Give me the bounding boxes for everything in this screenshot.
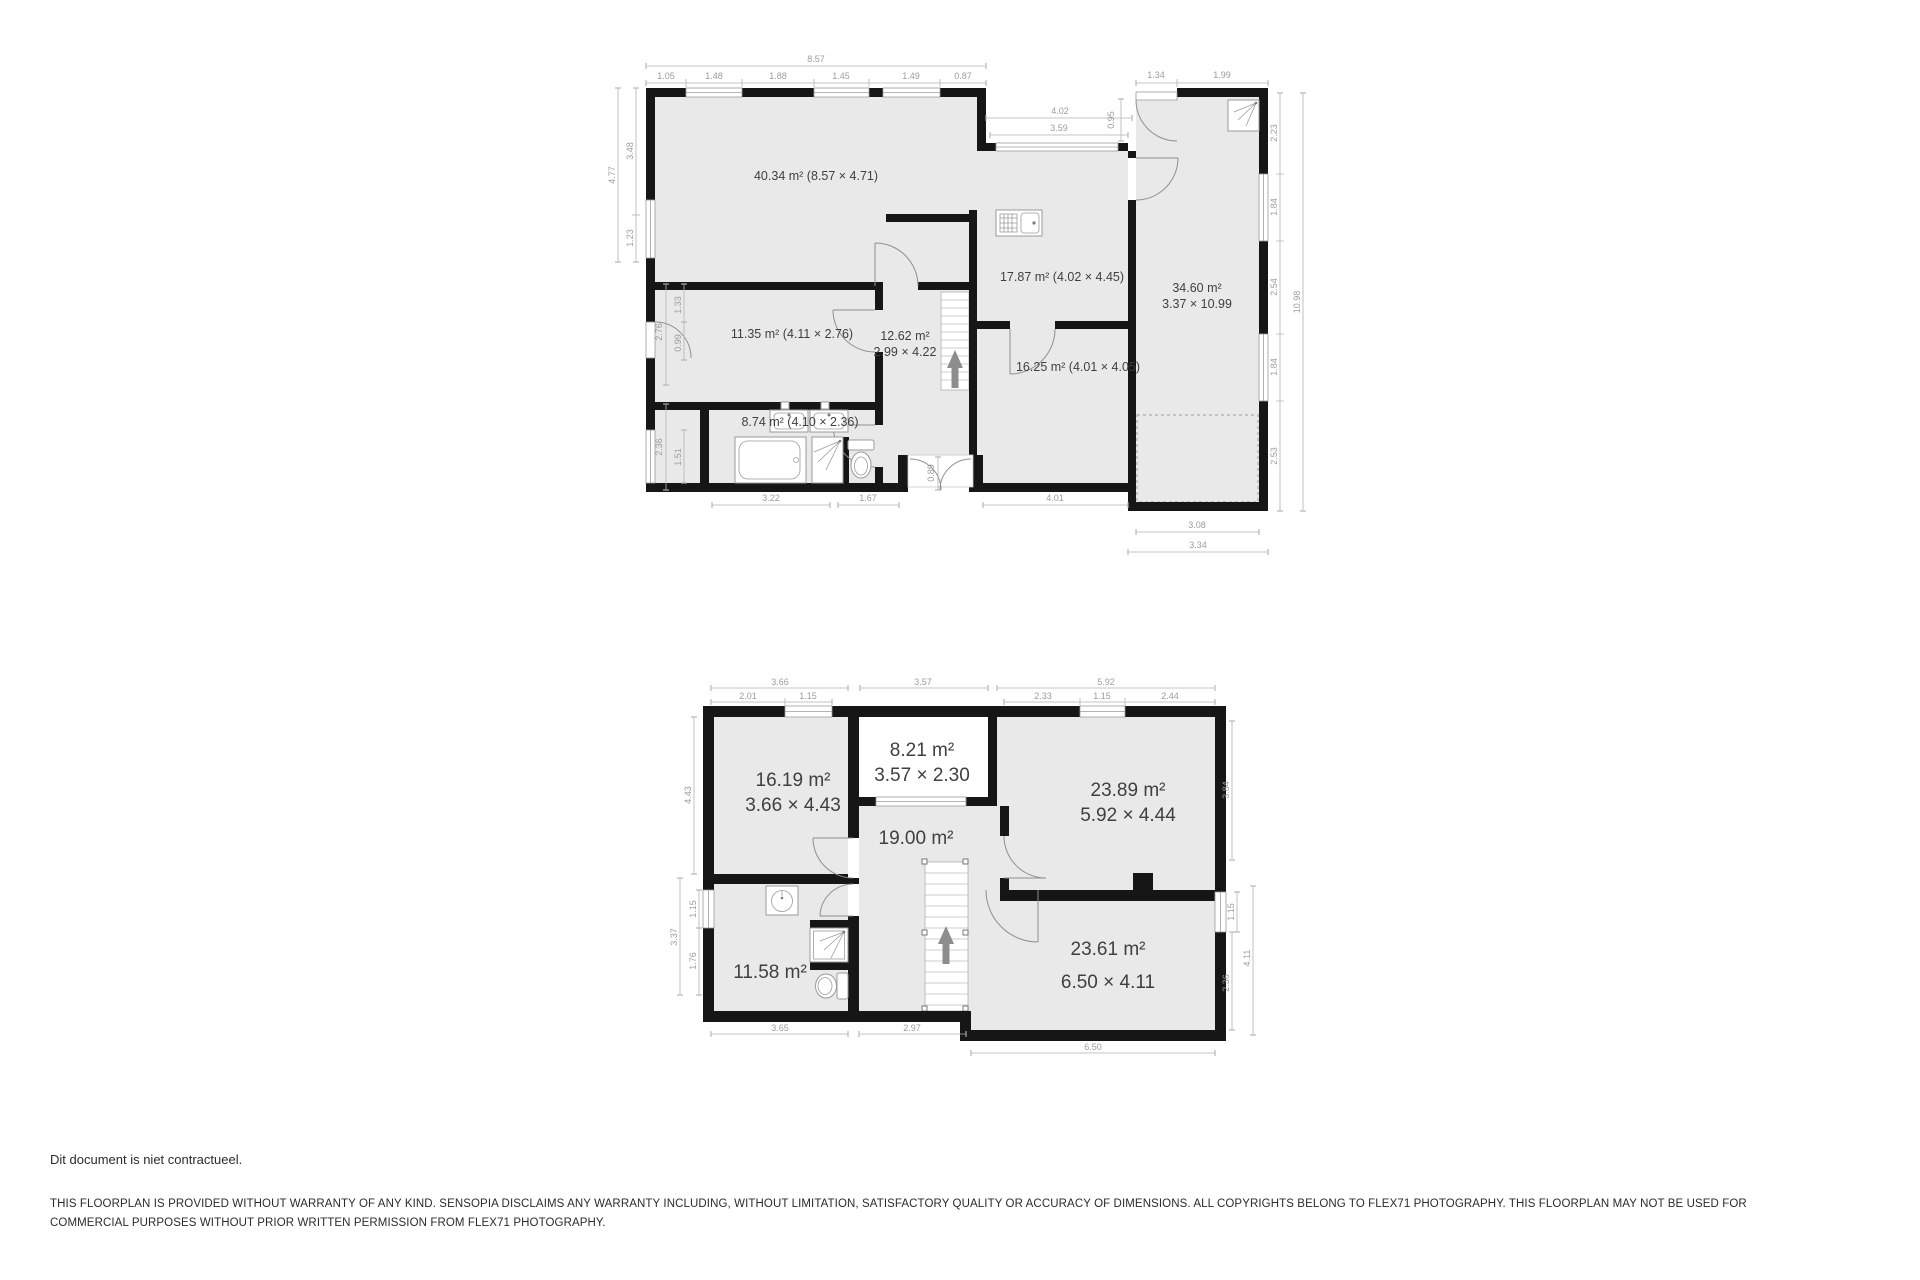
window	[785, 706, 832, 717]
front-door-slab	[1136, 92, 1177, 100]
dim-label: 3.37	[669, 928, 679, 946]
dim-label: 2.53	[1269, 447, 1279, 465]
dim-label: 1.34	[1147, 70, 1165, 80]
room-label-hall-size: 2.99 × 4.22	[874, 345, 937, 359]
shower-icon	[810, 928, 848, 962]
window	[703, 890, 714, 928]
dim-label: 2.76	[654, 323, 664, 341]
dim-label: 4.43	[683, 786, 693, 804]
dim-label: 1.99	[1213, 70, 1231, 80]
dim-label: 2.01	[739, 691, 757, 701]
shower-cubicle-icon	[1228, 100, 1259, 131]
dim-label: 1.15	[799, 691, 817, 701]
dim-label: 4.77	[607, 166, 617, 184]
room-label-garage-area: 34.60 m²	[1172, 281, 1221, 295]
toilet-icon	[816, 973, 849, 999]
garage-door-area	[1137, 415, 1258, 502]
dim-label: 2.36	[654, 438, 664, 456]
dim-label: 4.01	[1046, 493, 1064, 503]
room-label-landing: 19.00 m²	[879, 828, 954, 849]
room-label-bed3-size: 6.50 × 4.11	[1061, 972, 1155, 993]
floorplan-drawing: 8.57 1.05 1.48 1.88 1.45 1.49 0.87 4.02 …	[0, 0, 1920, 1280]
dim-label: 2.54	[1269, 278, 1279, 296]
room-label-bed2-size: 5.92 × 4.44	[1080, 805, 1176, 826]
dim-label: 1.84	[1269, 358, 1279, 376]
dim-label: 0.87	[954, 71, 972, 81]
contract-note: Dit document is niet contractueel.	[50, 1152, 242, 1167]
disclaimer-line-2: COMMERCIAL PURPOSES WITHOUT PRIOR WRITTE…	[50, 1217, 1890, 1229]
room-label-bed1-size: 3.66 × 4.43	[745, 795, 841, 816]
window	[814, 88, 869, 97]
dim-label: 1.15	[1226, 903, 1236, 921]
dim-label: 3.57	[914, 677, 932, 687]
disclaimer-line-1: THIS FLOORPLAN IS PROVIDED WITHOUT WARRA…	[50, 1198, 1890, 1210]
dim-label: 3.34	[1189, 540, 1207, 550]
first-floor-plan: 3.66 2.01 1.15 3.57 5.92 2.33 1.15 2.44 …	[669, 677, 1253, 1053]
dim-label: 1.05	[657, 71, 675, 81]
room-label-garage-size: 3.37 × 10.99	[1162, 297, 1232, 311]
room-label-dining: 16.25 m² (4.01 × 4.05)	[1016, 360, 1140, 374]
room-label-bed2-area: 23.89 m²	[1091, 780, 1166, 801]
staircase-first	[922, 859, 968, 1011]
dim-label: 1.49	[902, 71, 920, 81]
window	[686, 88, 742, 97]
dim-label: 1.15	[1093, 691, 1111, 701]
window	[1259, 174, 1268, 241]
dim-label: 1.67	[859, 493, 877, 503]
dim-label: 1.15	[688, 900, 698, 918]
room-label-bed1-area: 16.19 m²	[756, 770, 831, 791]
room-label-bedroom: 11.35 m² (4.11 × 2.76)	[731, 327, 853, 341]
dim-label: 6.50	[1084, 1042, 1102, 1052]
room-label-dormer-size: 3.57 × 2.30	[874, 765, 970, 786]
dim-label: 2.33	[1034, 691, 1052, 701]
dim-label: 0.99	[673, 334, 683, 352]
window	[1215, 892, 1226, 932]
kitchen-sink-icon	[996, 210, 1042, 236]
room-label-bathroom: 8.74 m² (4.10 × 2.36)	[741, 415, 858, 429]
room-label-kitchen: 17.87 m² (4.02 × 4.45)	[1000, 270, 1124, 284]
dim-label: 0.89	[926, 464, 936, 482]
window	[996, 143, 1118, 151]
window	[1080, 706, 1125, 717]
dim-label: 3.59	[1050, 123, 1068, 133]
dim-label: 4.11	[1242, 950, 1252, 967]
window	[1259, 334, 1268, 401]
dim-label: 1.33	[673, 296, 683, 314]
dim-label: 1.84	[1269, 198, 1279, 216]
dim-label: 3.66	[771, 677, 789, 687]
dim-label: 5.92	[1097, 677, 1115, 687]
dim-label: 3.08	[1188, 520, 1206, 530]
dim-label: 1.45	[832, 71, 850, 81]
dim-label: 3.22	[762, 493, 780, 503]
ground-floor-plan: 8.57 1.05 1.48 1.88 1.45 1.49 0.87 4.02 …	[607, 54, 1303, 552]
bathtub-icon	[735, 437, 806, 483]
dim-label: 10.98	[1292, 291, 1302, 314]
window	[646, 200, 655, 258]
dim-label: 2.44	[1161, 691, 1179, 701]
dim-label: 1.48	[705, 71, 723, 81]
dim-label: 3.48	[625, 142, 635, 160]
dim-label: 1.88	[769, 71, 787, 81]
floorplan-page: 8.57 1.05 1.48 1.88 1.45 1.49 0.87 4.02 …	[0, 0, 1920, 1280]
dim-label: 2.23	[1269, 124, 1279, 142]
dim-label: 8.57	[807, 54, 825, 64]
dim-label: 2.36	[1221, 974, 1231, 992]
dim-label: 1.51	[673, 448, 683, 466]
dim-label: 0.95	[1106, 111, 1116, 129]
dim-label: 3.84	[1221, 781, 1231, 799]
room-label-dormer-area: 8.21 m²	[890, 740, 954, 761]
dim-label: 1.76	[688, 952, 698, 970]
room-label-bed3-area: 23.61 m²	[1071, 939, 1146, 960]
window	[883, 88, 940, 97]
dim-label: 1.23	[625, 229, 635, 247]
window	[876, 797, 966, 806]
shower-icon	[812, 437, 843, 483]
room-label-hall-area: 12.62 m²	[880, 329, 929, 343]
washbasin-icon	[766, 886, 798, 915]
room-label-bathroom-first: 11.58 m²	[733, 962, 807, 983]
room-label-living: 40.34 m² (8.57 × 4.71)	[754, 169, 878, 183]
dim-label: 3.65	[771, 1023, 789, 1033]
dim-label: 2.97	[903, 1023, 921, 1033]
staircase-ground	[941, 292, 969, 390]
dim-label: 4.02	[1051, 106, 1069, 116]
